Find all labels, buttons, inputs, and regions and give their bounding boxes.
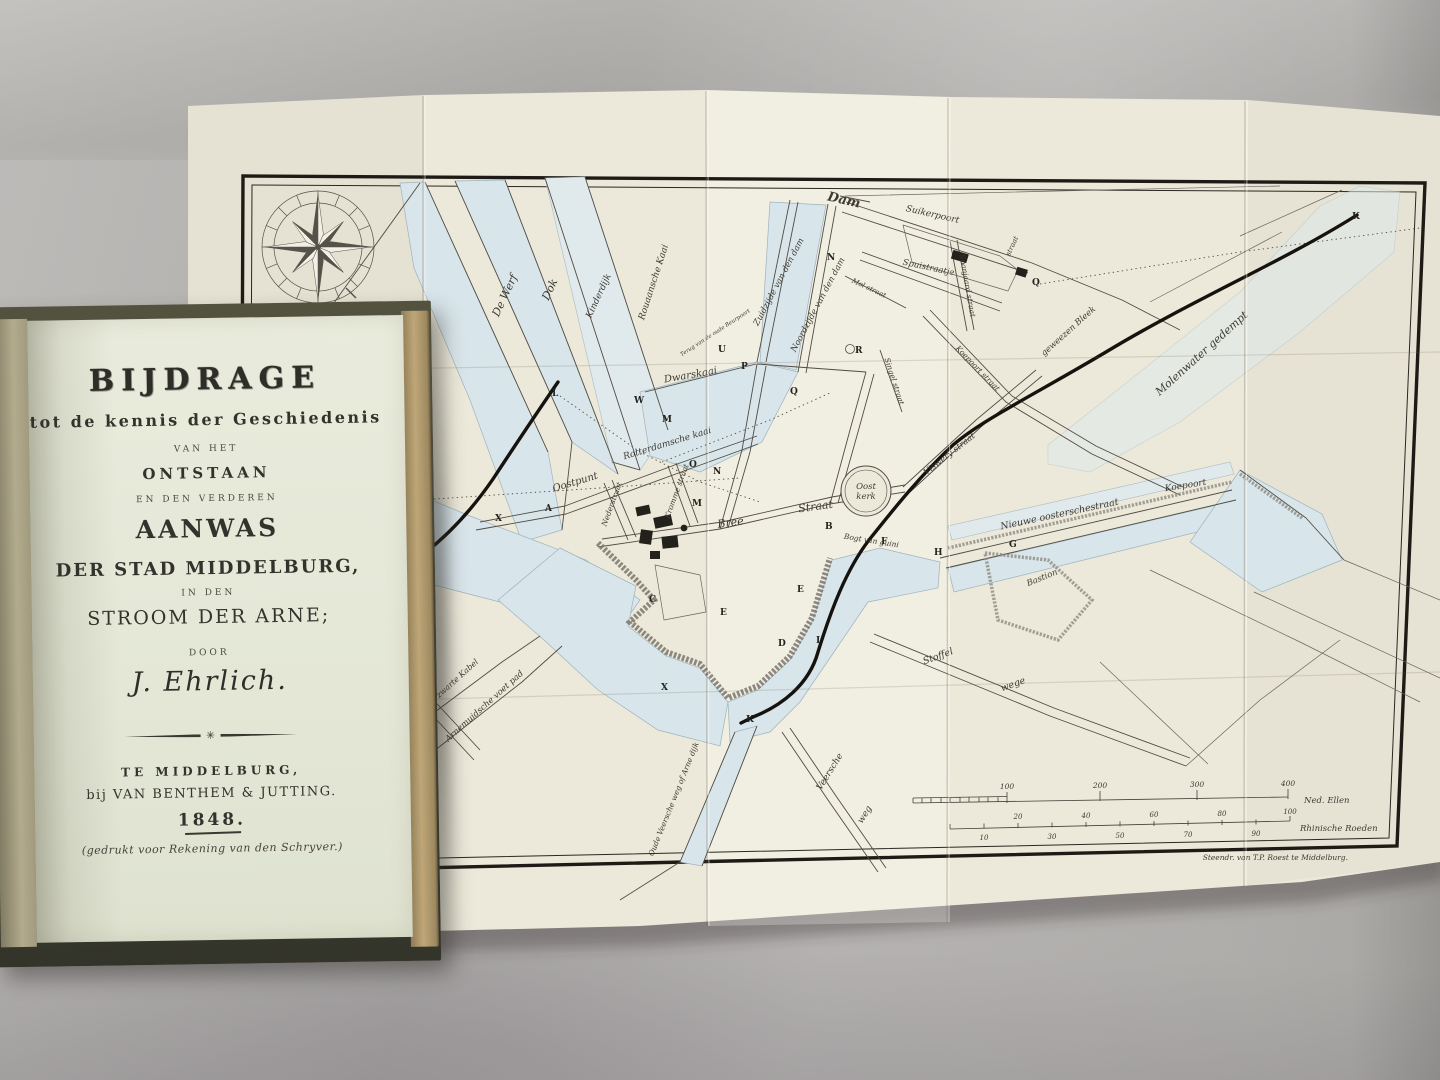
printer-credit: Steendr. van T.P. Roest te Middelburg. xyxy=(1203,853,1348,862)
compass-rose-icon xyxy=(262,191,374,303)
book-author: J. Ehrlich. xyxy=(33,663,387,700)
map-ref-letter: U xyxy=(718,345,726,355)
scale-tick: 80 xyxy=(1218,810,1227,818)
scale-tick: 10 xyxy=(980,834,989,842)
photo-of-book-and-map: Oost kerk Dam Suikerpoort xyxy=(0,0,1440,1080)
map-ref-letter: B xyxy=(825,522,833,532)
book-imprint-note: (gedrukt voor Rekening van den Schryver.… xyxy=(35,839,389,858)
map-ref-letter: X xyxy=(661,683,668,693)
book-imprint-place: TE MIDDELBURG, xyxy=(34,761,388,781)
scale-unit: Rhinische Roeden xyxy=(1299,824,1378,834)
scale-tick: 60 xyxy=(1150,811,1159,819)
map-ref-letter: N xyxy=(713,467,721,477)
scale-tick: 300 xyxy=(1190,780,1205,789)
map-ref-letter: Q xyxy=(790,387,798,397)
ornament-star-icon: ✳ xyxy=(206,730,215,741)
scale-tick: 50 xyxy=(1116,832,1125,840)
book-line-door: DOOR xyxy=(32,645,386,661)
scale-tick: 100 xyxy=(1283,808,1297,816)
map-ref-letter: R xyxy=(855,346,863,356)
book-line-stroom: STROOM DER ARNE; xyxy=(32,603,386,631)
book-title: BIJDRAGE xyxy=(28,359,383,400)
scale-unit: Ned. Ellen xyxy=(1303,796,1349,806)
map-ref-letter: M xyxy=(692,499,702,509)
map-ref-letter: W xyxy=(633,396,645,406)
scale-tick: 100 xyxy=(1000,782,1015,791)
book: BIJDRAGE tot de kennis der Geschiedenis … xyxy=(0,301,441,968)
book-subtitle: tot de kennis der Geschiedenis xyxy=(29,407,383,432)
map-ref-letter: D xyxy=(778,639,786,649)
map-ref-letter: K xyxy=(746,715,755,725)
book-line-aanwas: AANWAS xyxy=(30,511,384,546)
book-line-in-den: IN DEN xyxy=(31,585,385,601)
scale-tick: 40 xyxy=(1081,812,1091,820)
map-ref-letter: C xyxy=(649,595,656,605)
year-rule xyxy=(185,831,241,835)
scale-tick: 90 xyxy=(1252,830,1261,838)
map-ref-letter: L xyxy=(552,389,559,399)
scale-tick: 70 xyxy=(1184,831,1193,839)
map-ref-letter: H xyxy=(934,548,943,558)
scale-tick: 400 xyxy=(1280,779,1296,788)
map-ref-letter: F xyxy=(881,537,888,547)
map-ref-letter: N xyxy=(827,253,835,263)
map-ref-letter: A xyxy=(544,504,553,514)
map-ref-letter: M xyxy=(662,415,672,425)
book-title-page: BIJDRAGE tot de kennis der Geschiedenis … xyxy=(27,315,413,943)
book-line-verderen: EN DEN VERDEREN xyxy=(30,491,384,507)
map-ref-letter: E xyxy=(720,608,727,618)
divider-ornament: ✳ xyxy=(124,729,298,743)
oostkerk: Oost kerk xyxy=(841,466,891,516)
map-ref-letter: K xyxy=(1352,212,1361,222)
book-imprint-publisher: bij VAN BENTHEM & JUTTING. xyxy=(34,783,388,804)
map-ref-letter: E xyxy=(797,585,804,595)
map-ref-letter: G xyxy=(1009,540,1017,550)
book-line-ontstaan: ONTSTAAN xyxy=(29,461,383,485)
oostkerk-label: Oost xyxy=(856,482,876,492)
scale-tick: 200 xyxy=(1092,781,1108,790)
map-ref-letter: Q xyxy=(1032,278,1040,288)
scale-tick: 30 xyxy=(1048,833,1057,841)
oostkerk-label: kerk xyxy=(856,492,875,502)
book-line-stad: DER STAD MIDDELBURG, xyxy=(31,555,385,582)
book-line-van-het: VAN HET xyxy=(29,441,383,457)
map-ref-letter: X xyxy=(495,514,502,524)
map-ref-letter: I xyxy=(816,636,820,646)
book-imprint-year: 1848. xyxy=(35,807,389,833)
map-ref-letter: O xyxy=(689,460,697,470)
scale-tick: 20 xyxy=(1013,813,1023,821)
